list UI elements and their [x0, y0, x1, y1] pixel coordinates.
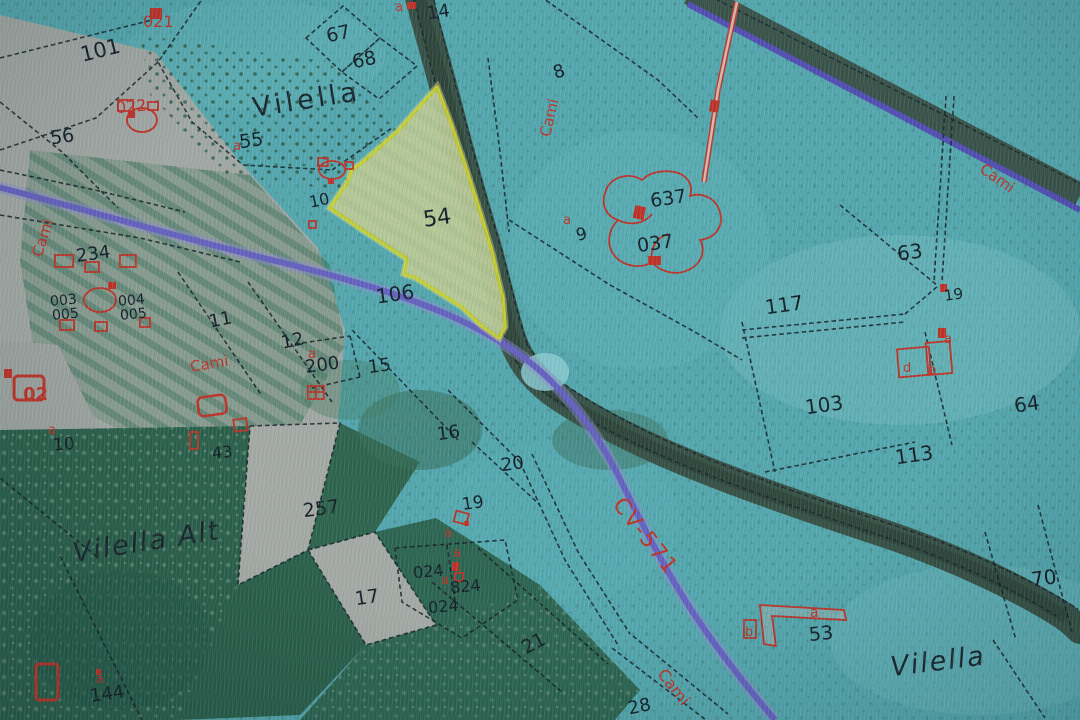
photo-grain-overlay	[0, 0, 1080, 720]
map-canvas[interactable]: 101 67 68 14 8 55 56 54 106 10 9 117 103…	[0, 0, 1080, 720]
cadastral-map-viewport[interactable]: 101 67 68 14 8 55 56 54 106 10 9 117 103…	[0, 0, 1080, 720]
